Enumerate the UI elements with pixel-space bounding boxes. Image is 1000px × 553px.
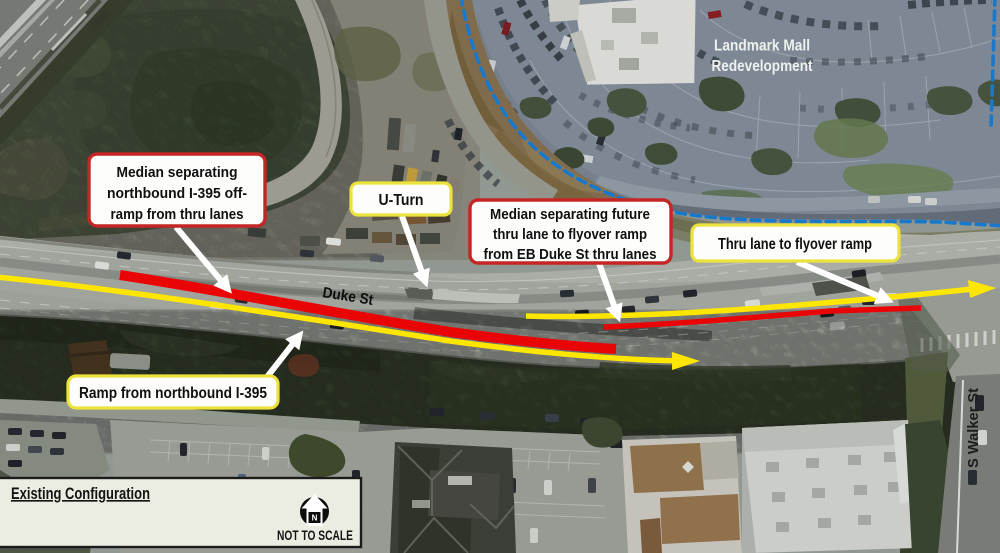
svg-text:Ramp from northbound I-395: Ramp from northbound I-395 xyxy=(79,385,267,402)
svg-text:Landmark Mall: Landmark Mall xyxy=(714,38,810,55)
svg-text:Existing Configuration: Existing Configuration xyxy=(11,485,150,503)
svg-text:U-Turn: U-Turn xyxy=(379,192,424,209)
svg-text:thru lane to flyover ramp: thru lane to flyover ramp xyxy=(493,226,647,243)
svg-text:Median separating: Median separating xyxy=(117,164,238,181)
svg-text:S Walker St: S Walker St xyxy=(966,388,982,468)
svg-text:Thru lane to flyover ramp: Thru lane to flyover ramp xyxy=(718,236,872,253)
svg-text:NOT TO SCALE: NOT TO SCALE xyxy=(277,528,353,543)
svg-text:northbound I-395 off-: northbound I-395 off- xyxy=(107,185,247,202)
svg-text:N: N xyxy=(312,514,318,523)
svg-text:Redevelopment: Redevelopment xyxy=(712,58,813,75)
svg-text:ramp from thru lanes: ramp from thru lanes xyxy=(111,206,244,223)
svg-text:from EB Duke St thru lanes: from EB Duke St thru lanes xyxy=(484,246,657,263)
svg-text:Median separating future: Median separating future xyxy=(490,206,650,223)
